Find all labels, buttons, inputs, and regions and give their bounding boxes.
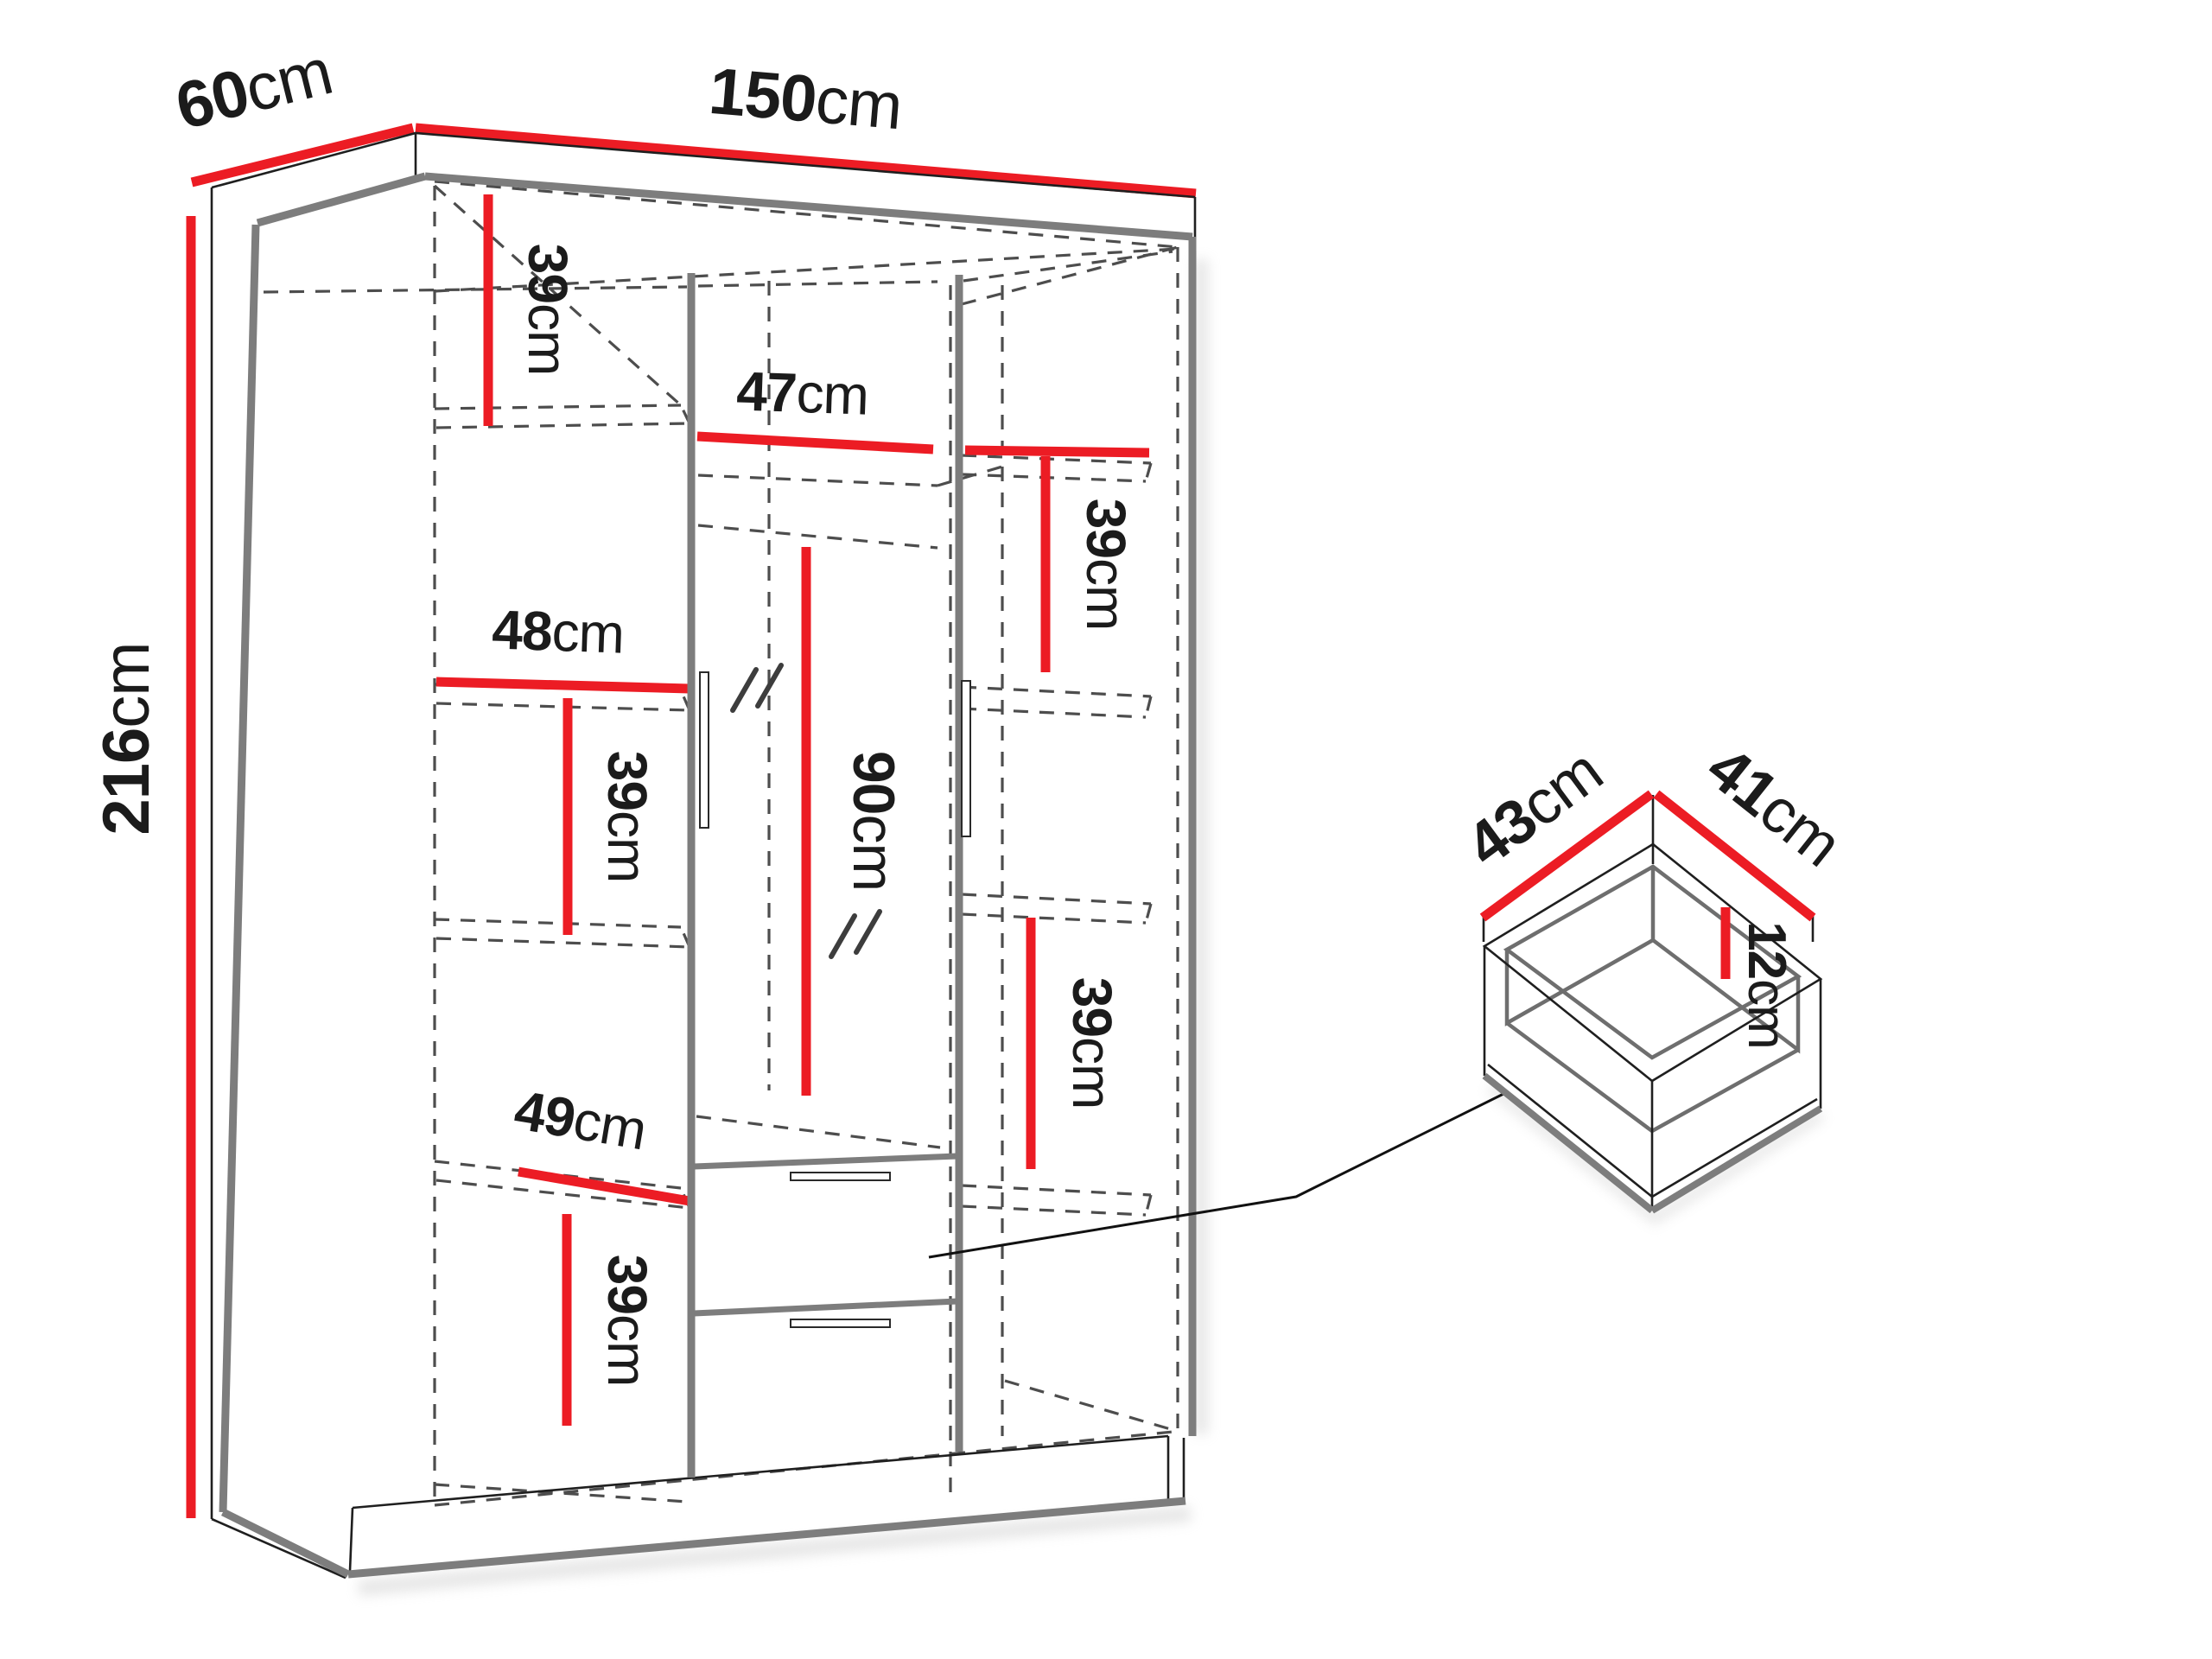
door-handle-middle [700,672,709,828]
diagram-canvas: 60cm 150cm 216cm 39cm 47cm 48cm 39cm 90c… [0,0,2212,1659]
dim-line-47 [697,436,933,449]
drawer-leader-line [929,1093,1505,1257]
mirror-hatch [831,916,855,957]
edge-side-bottom [223,1512,348,1574]
drawer2-handle [791,1319,890,1327]
wardrobe-hidden-edges [264,181,1178,1505]
wardrobe-outline-thin [212,133,1195,1578]
hidden-edge-ceiling-middle [698,282,938,286]
shelf-edge [962,709,1146,717]
drawer1-handle [791,1173,890,1180]
shelf-edge [962,914,1146,923]
shelf-edge [1146,904,1151,923]
shelf-edge [698,475,938,486]
shelf-edge [962,894,1151,904]
label-depth-60: 60cm [168,35,339,143]
outline-side-bottom [212,1519,346,1578]
label-39-right-top: 39cm [1075,499,1137,631]
label-drawer-43: 43cm [1454,736,1615,880]
label-39-right-bottom: 39cm [1061,977,1123,1109]
label-drawer-12: 12cm [1737,921,1796,1049]
shelf-edge [435,919,681,927]
label-height-216: 216cm [90,642,163,835]
drawer2-top-edge [694,1301,957,1313]
shelf-edge [1146,463,1151,481]
label-width-150: 150cm [706,54,904,143]
edge-side-top [257,176,425,223]
label-39-left-top: 39cm [517,244,579,376]
plinth-left-cap [350,1508,353,1571]
shelf-edge [962,1206,1146,1215]
shadow-bottom [359,1514,1191,1588]
drawer1-top-edge [694,1156,957,1166]
door-handle-right [962,681,970,836]
dim-line-48 [436,682,690,689]
shelf-edge [962,474,1146,481]
hidden-edge-floor-right [1005,1381,1173,1430]
mirror-hatch [733,670,756,710]
shelf-edge [435,405,681,409]
label-drawer-41: 41cm [1694,733,1853,880]
shelf-edge [436,423,690,428]
shelf-edge [962,1185,1151,1195]
hidden-edge-floor-left [435,1484,687,1502]
label-47: 47cm [735,359,869,426]
handles [700,672,970,1327]
dim-line-47-ext [965,450,1149,453]
label-48: 48cm [491,598,625,664]
shelf-edge [1146,1195,1151,1215]
edge-bottom [348,1501,1185,1574]
shelf-edge-above-drawers [696,1116,940,1147]
label-39-left-bottom: 39cm [596,1255,658,1387]
shelf-edge [1146,696,1151,717]
label-90: 90cm [841,751,906,891]
label-49: 49cm [510,1078,650,1161]
wardrobe-dimensions-diagram: 60cm 150cm 216cm 39cm 47cm 48cm 39cm 90c… [0,0,2212,1659]
plinth-top-line [353,1436,1168,1508]
dim-line-depth-60 [192,128,413,182]
shelf-edge [436,938,690,947]
hidden-edge-ceiling-left [264,287,687,292]
shelf-edge [962,687,1151,696]
label-39-left-mid: 39cm [596,751,658,883]
wardrobe-outline-thick [223,176,1192,1574]
edge-front-left [223,225,256,1512]
hidden-edge-back-top [435,181,1178,247]
mirror-hatch [856,912,880,952]
shelf-edge [698,525,938,548]
dim-line-49 [518,1172,690,1201]
